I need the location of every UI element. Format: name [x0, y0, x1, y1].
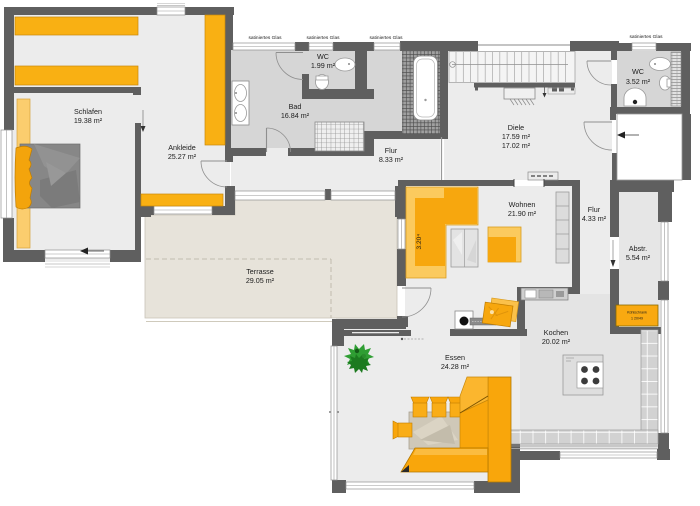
svg-text:Flur: Flur — [588, 205, 601, 214]
svg-text:1 20/49: 1 20/49 — [631, 317, 643, 321]
svg-text:16.84 m²: 16.84 m² — [281, 111, 310, 120]
svg-text:5.54 m²: 5.54 m² — [626, 253, 651, 262]
svg-text:Diele: Diele — [508, 123, 524, 132]
svg-text:Kühlschrank: Kühlschrank — [627, 311, 647, 315]
svg-text:17.59 m²: 17.59 m² — [502, 132, 531, 141]
svg-text:4.33 m²: 4.33 m² — [582, 214, 607, 223]
svg-text:Ankleide: Ankleide — [168, 143, 196, 152]
svg-text:WC: WC — [632, 67, 644, 76]
svg-text:25.27 m²: 25.27 m² — [168, 152, 197, 161]
svg-text:satiniertes Glas: satiniertes Glas — [629, 34, 663, 40]
svg-text:Kochen: Kochen — [544, 328, 568, 337]
svg-text:Flur: Flur — [385, 146, 398, 155]
svg-text:satiniertes Glas: satiniertes Glas — [369, 35, 403, 41]
svg-text:Essen: Essen — [445, 353, 465, 362]
svg-text:3.20⁴: 3.20⁴ — [416, 234, 423, 250]
svg-text:29.05 m²: 29.05 m² — [246, 276, 275, 285]
svg-text:21.90 m²: 21.90 m² — [508, 209, 537, 218]
svg-text:8.33 m²: 8.33 m² — [379, 155, 404, 164]
svg-text:Bad: Bad — [289, 102, 302, 111]
svg-text:20.02 m²: 20.02 m² — [542, 337, 571, 346]
svg-text:satiniertes Glas: satiniertes Glas — [306, 35, 340, 41]
svg-text:Schlafen: Schlafen — [74, 107, 102, 116]
svg-text:WC: WC — [317, 52, 329, 61]
svg-text:17.02 m²: 17.02 m² — [502, 141, 531, 150]
svg-text:Terrasse: Terrasse — [246, 267, 274, 276]
svg-text:Wohnen: Wohnen — [509, 200, 536, 209]
svg-text:24.28 m²: 24.28 m² — [441, 362, 470, 371]
svg-text:3.52 m²: 3.52 m² — [626, 77, 651, 86]
svg-text:Abstr.: Abstr. — [629, 244, 647, 253]
svg-text:19.38 m²: 19.38 m² — [74, 116, 103, 125]
svg-text:1.99 m²: 1.99 m² — [311, 61, 336, 70]
svg-text:satiniertes Glas: satiniertes Glas — [248, 35, 282, 41]
